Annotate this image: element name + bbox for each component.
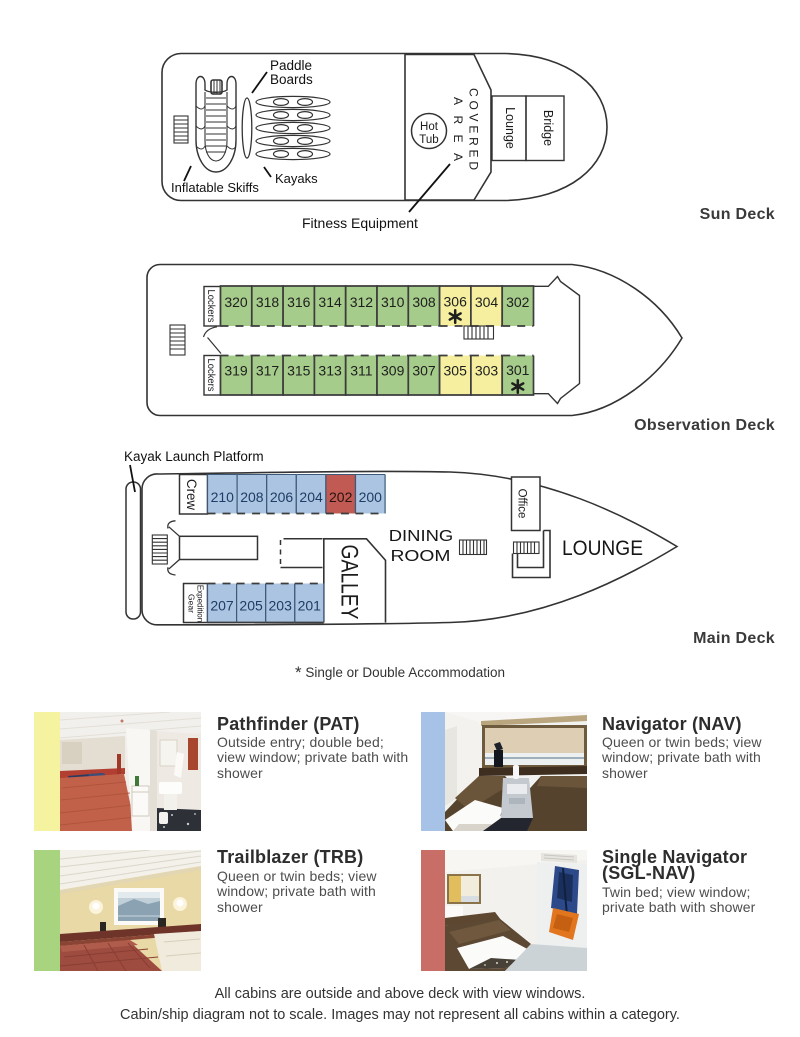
svg-text:312: 312 <box>350 294 374 310</box>
svg-text:Bridge: Bridge <box>541 110 555 146</box>
svg-text:314: 314 <box>318 294 342 310</box>
svg-text:317: 317 <box>256 363 280 379</box>
svg-text:200: 200 <box>359 489 383 505</box>
svg-text:307: 307 <box>412 363 436 379</box>
svg-text:207: 207 <box>210 598 234 614</box>
svg-text:305: 305 <box>444 363 468 379</box>
svg-text:309: 309 <box>381 363 405 379</box>
svg-text:Lockers: Lockers <box>205 290 217 323</box>
svg-text:LOUNGE: LOUNGE <box>562 537 643 560</box>
svg-text:AREA: AREA <box>451 97 465 161</box>
svg-text:Kayaks: Kayaks <box>275 171 318 186</box>
svg-text:ROOM: ROOM <box>391 548 451 565</box>
svg-text:Fitness Equipment: Fitness Equipment <box>302 215 418 231</box>
svg-text:Kayak Launch Platform: Kayak Launch Platform <box>124 449 264 464</box>
svg-text:313: 313 <box>318 363 342 379</box>
svg-text:Lockers: Lockers <box>205 359 217 392</box>
svg-text:304: 304 <box>475 294 499 310</box>
svg-text:201: 201 <box>298 598 322 614</box>
svg-text:206: 206 <box>270 489 294 505</box>
svg-text:203: 203 <box>269 598 293 614</box>
svg-text:302: 302 <box>506 294 530 310</box>
svg-text:204: 204 <box>299 489 323 505</box>
svg-text:315: 315 <box>287 363 311 379</box>
svg-text:318: 318 <box>256 294 280 310</box>
svg-text:Paddle: Paddle <box>270 58 312 73</box>
svg-text:Hot: Hot <box>420 121 439 133</box>
svg-text:DINING: DINING <box>389 528 454 545</box>
svg-text:Tub: Tub <box>419 134 438 146</box>
svg-text:GALLEY: GALLEY <box>336 545 363 620</box>
svg-text:Office: Office <box>516 489 528 519</box>
svg-text:205: 205 <box>239 598 263 614</box>
svg-text:310: 310 <box>381 294 405 310</box>
svg-text:Lounge: Lounge <box>503 107 517 149</box>
svg-text:208: 208 <box>240 489 264 505</box>
svg-text:202: 202 <box>329 489 353 505</box>
svg-text:320: 320 <box>224 294 248 310</box>
svg-text:308: 308 <box>412 294 436 310</box>
svg-text:311: 311 <box>350 363 373 379</box>
svg-text:COVERED: COVERED <box>467 88 481 170</box>
svg-text:316: 316 <box>287 294 311 310</box>
svg-text:Inflatable Skiffs: Inflatable Skiffs <box>171 180 259 195</box>
svg-text:210: 210 <box>211 489 235 505</box>
svg-text:319: 319 <box>224 363 248 379</box>
svg-text:Crew: Crew <box>184 479 200 511</box>
svg-text:301: 301 <box>506 362 530 378</box>
svg-text:306: 306 <box>444 294 468 310</box>
svg-text:303: 303 <box>475 363 499 379</box>
svg-text:Gear: Gear <box>187 594 197 613</box>
svg-text:Boards: Boards <box>270 72 313 87</box>
